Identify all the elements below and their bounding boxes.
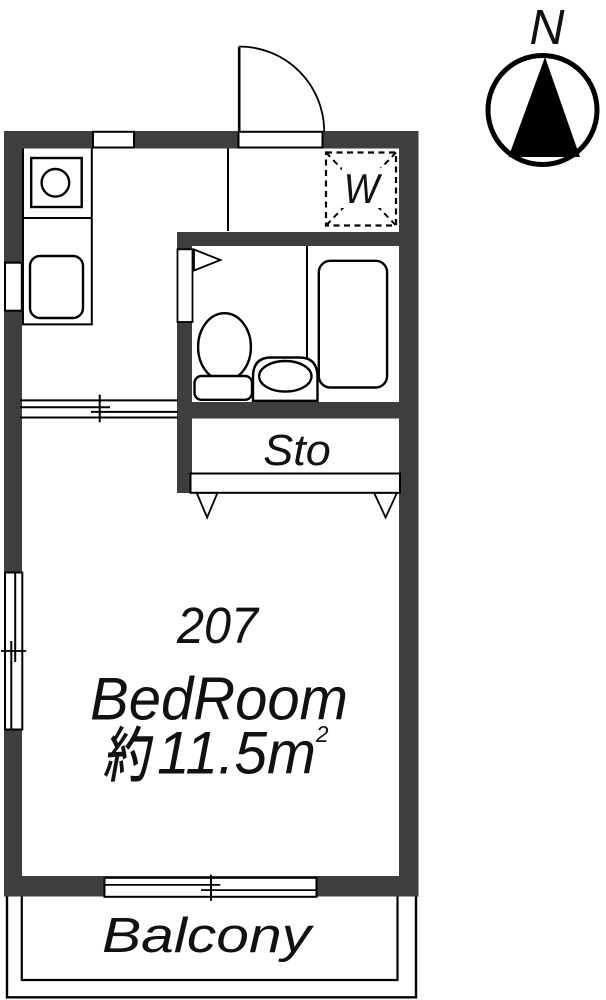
- svg-text:11.5m: 11.5m: [157, 719, 316, 786]
- svg-text:Sto: Sto: [263, 426, 331, 475]
- svg-text:Balcony: Balcony: [102, 909, 314, 963]
- svg-text:N: N: [530, 0, 565, 55]
- svg-text:W: W: [344, 165, 382, 212]
- svg-text:207: 207: [176, 597, 260, 654]
- svg-text:2: 2: [315, 721, 329, 747]
